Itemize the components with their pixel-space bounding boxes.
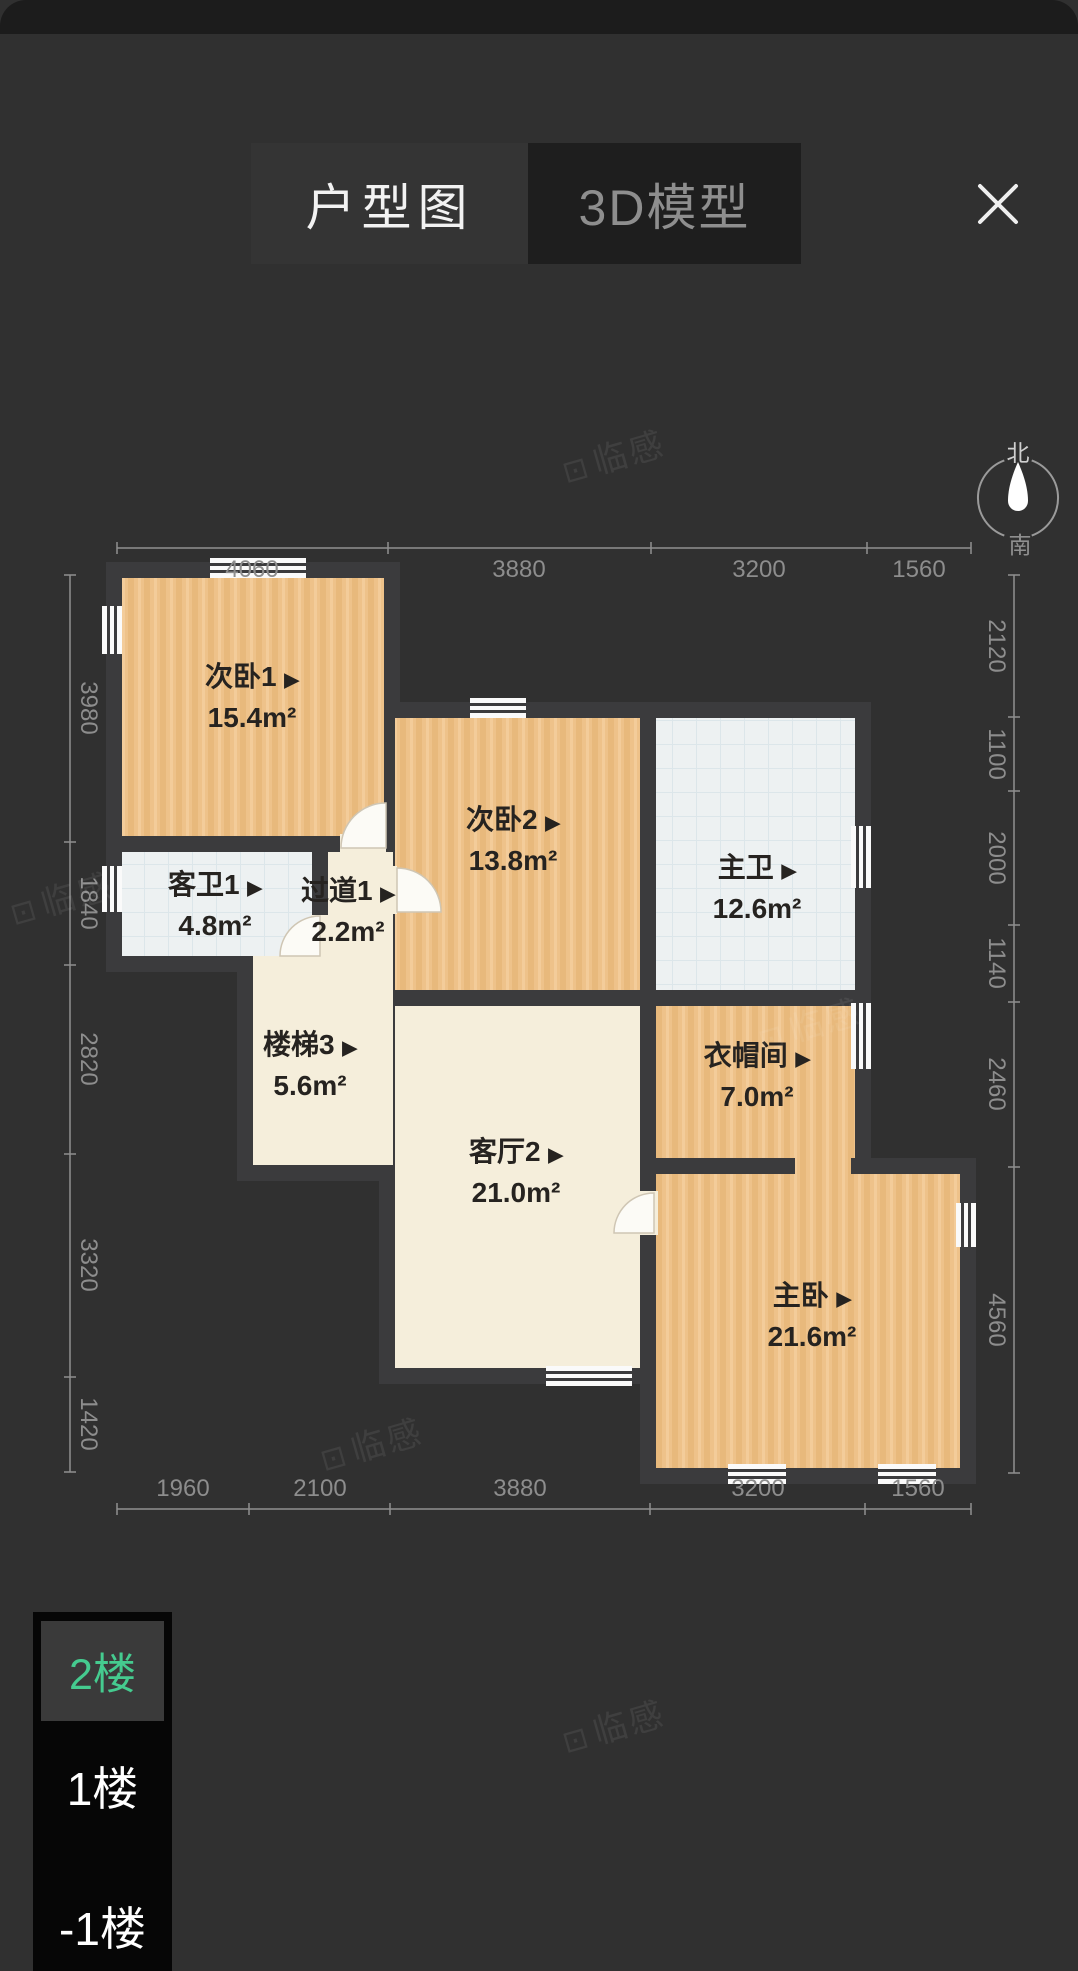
room-arrow-icon: ▶	[284, 670, 299, 691]
floor-item-2f[interactable]: 2楼	[41, 1621, 164, 1721]
dim-bottom-5: 1560	[863, 1475, 973, 1503]
window	[470, 698, 526, 718]
room-label-master-bedroom[interactable]: 主卧 ▶ 21.6m²	[768, 1277, 857, 1355]
room-area: 15.4m²	[205, 699, 299, 736]
room-arrow-icon: ▶	[782, 861, 797, 882]
room-label-guest-bath-1[interactable]: 客卫1 ▶ 4.8m²	[168, 866, 262, 944]
room-area: 21.0m²	[469, 1174, 563, 1211]
room-label-stairs-3[interactable]: 楼梯3 ▶ 5.6m²	[263, 1026, 357, 1104]
room-area: 5.6m²	[263, 1067, 357, 1104]
compass-needle	[1008, 462, 1028, 511]
room-label-secondary-bedroom-1[interactable]: 次卧1 ▶ 15.4m²	[205, 658, 299, 736]
floor-selector: 2楼 1楼 -1楼	[33, 1612, 172, 1971]
room-label-secondary-bedroom-2[interactable]: 次卧2 ▶ 13.8m²	[466, 801, 560, 879]
room-arrow-icon: ▶	[342, 1038, 357, 1059]
floorplan-viewer-page: 户型图 3D模型	[0, 0, 1078, 1971]
room-arrow-icon: ▶	[380, 884, 395, 905]
window	[102, 606, 122, 654]
dim-right-5: 2460	[982, 1029, 1010, 1139]
compass-south-label: 南	[1009, 526, 1032, 560]
room-arrow-icon: ▶	[247, 878, 262, 899]
dim-right-4: 1140	[982, 908, 1010, 1018]
room-area: 4.8m²	[168, 907, 262, 944]
window	[956, 1203, 976, 1247]
dim-left-1: 3980	[74, 653, 102, 763]
room-label-master-bath[interactable]: 主卫 ▶ 12.6m²	[713, 849, 802, 927]
room-area: 2.2m²	[301, 913, 395, 950]
window	[546, 1366, 632, 1386]
dim-left-4: 3320	[74, 1210, 102, 1320]
dim-right-6: 4560	[982, 1265, 1010, 1375]
room-label-living-room-2[interactable]: 客厅2 ▶ 21.0m²	[469, 1133, 563, 1211]
room-area: 13.8m²	[466, 842, 560, 879]
room-label-hallway-1[interactable]: 过道1 ▶ 2.2m²	[301, 872, 395, 950]
dim-top-3: 3200	[704, 556, 814, 584]
dim-right-1: 2120	[982, 591, 1010, 701]
dim-top-4: 1560	[864, 556, 974, 584]
room-arrow-icon: ▶	[548, 1145, 563, 1166]
dim-top-1: 4060	[197, 556, 307, 584]
dim-top-2: 3880	[464, 556, 574, 584]
window	[851, 826, 871, 888]
dim-bottom-1: 1960	[128, 1475, 238, 1503]
dim-bottom-3: 3880	[465, 1475, 575, 1503]
room-area: 12.6m²	[713, 890, 802, 927]
dim-bottom-4: 3200	[703, 1475, 813, 1503]
floor-item-1f[interactable]: 1楼	[41, 1736, 164, 1836]
room-area: 7.0m²	[704, 1078, 810, 1115]
dim-left-5: 1420	[74, 1369, 102, 1479]
compass-icon	[978, 460, 1058, 535]
dim-right-3: 2000	[982, 803, 1010, 913]
dim-right-2: 1100	[982, 699, 1010, 809]
dim-left-3: 2820	[74, 1004, 102, 1114]
room-arrow-icon: ▶	[545, 813, 560, 834]
floor-item-minus-1f[interactable]: -1楼	[41, 1876, 164, 1971]
room-arrow-icon: ▶	[796, 1049, 811, 1070]
room-arrow-icon: ▶	[837, 1289, 852, 1310]
dim-bottom-2: 2100	[265, 1475, 375, 1503]
room-area: 21.6m²	[768, 1318, 857, 1355]
compass-north-label: 北	[1007, 434, 1030, 468]
